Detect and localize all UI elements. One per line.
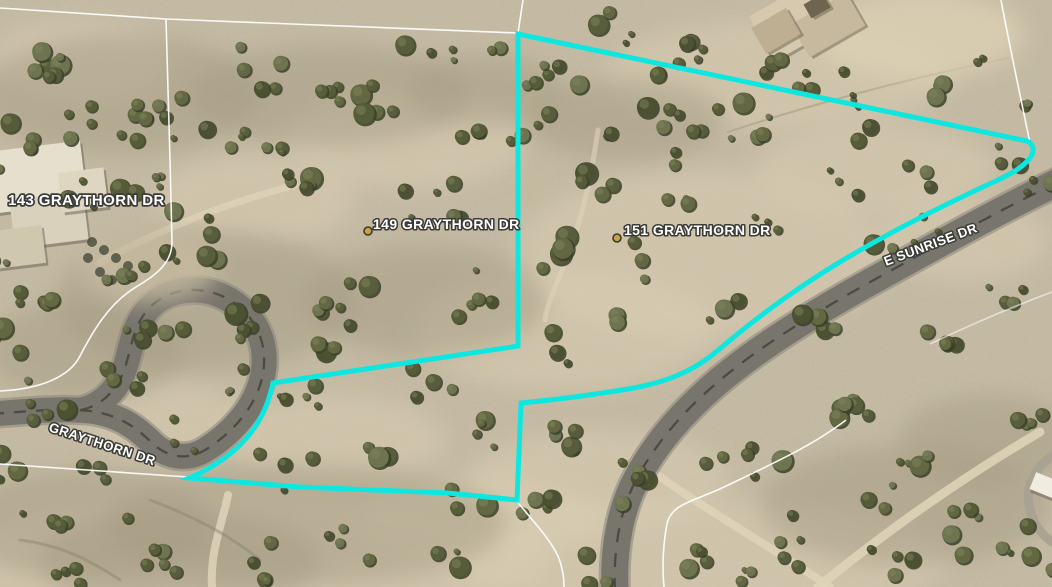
- map-label-143-graythorn-dr: 143 GRAYTHORN DR: [8, 192, 165, 209]
- aerial-map: 143 GRAYTHORN DR149 GRAYTHORN DR151 GRAY…: [0, 0, 1052, 587]
- shrub: [83, 253, 93, 263]
- map-label-151-graythorn-dr: 151 GRAYTHORN DR: [624, 222, 771, 238]
- address-point-151[interactable]: [613, 234, 621, 242]
- map-label-149-graythorn-dr: 149 GRAYTHORN DR: [373, 216, 520, 232]
- shrub: [87, 237, 97, 247]
- map-viewport[interactable]: 143 GRAYTHORN DR149 GRAYTHORN DR151 GRAY…: [0, 0, 1052, 587]
- shrub: [99, 245, 109, 255]
- address-point-149[interactable]: [364, 227, 372, 235]
- scrub-patch: [305, 245, 545, 355]
- shrub: [111, 253, 121, 263]
